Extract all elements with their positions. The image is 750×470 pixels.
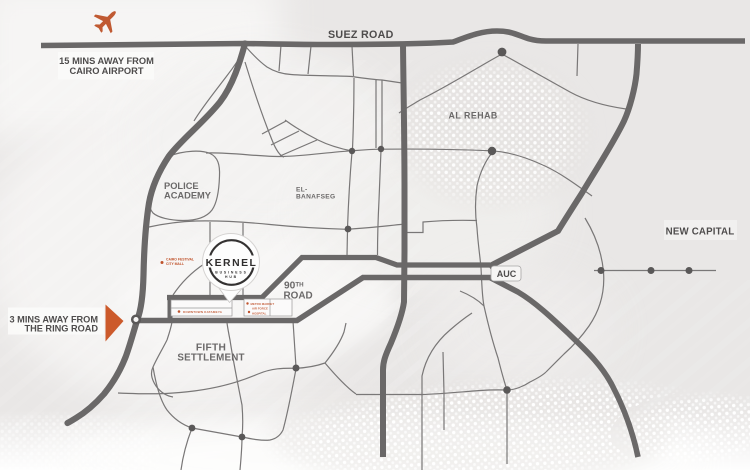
svg-text:POLICE: POLICE <box>164 181 199 191</box>
svg-text:BUSINESS: BUSINESS <box>215 271 248 275</box>
svg-text:AUC: AUC <box>497 269 517 279</box>
svg-text:ROAD: ROAD <box>284 290 313 301</box>
svg-text:NEW CAPITAL: NEW CAPITAL <box>666 227 735 238</box>
svg-text:THE RING ROAD: THE RING ROAD <box>25 323 99 333</box>
svg-text:HOSPITAL: HOSPITAL <box>252 311 267 315</box>
svg-text:CAIRO AIRPORT: CAIRO AIRPORT <box>69 66 143 76</box>
svg-text:SETTLEMENT: SETTLEMENT <box>177 353 244 364</box>
svg-text:AIR FORCE: AIR FORCE <box>252 306 268 310</box>
svg-text:KERNEL: KERNEL <box>206 258 258 269</box>
svg-text:HUB: HUB <box>225 275 238 279</box>
svg-text:CAIRO FESTIVAL: CAIRO FESTIVAL <box>166 258 194 262</box>
svg-text:AL REHAB: AL REHAB <box>449 111 498 121</box>
svg-text:ACADEMY: ACADEMY <box>164 191 212 201</box>
svg-text:SUEZ ROAD: SUEZ ROAD <box>328 29 394 41</box>
svg-text:DOWNTOWN KATAMEYA: DOWNTOWN KATAMEYA <box>183 310 223 314</box>
svg-text:15 MINS AWAY FROM: 15 MINS AWAY FROM <box>59 56 154 66</box>
svg-text:CITY MALL: CITY MALL <box>166 262 184 266</box>
svg-text:METRO MARKET: METRO MARKET <box>251 302 275 306</box>
svg-text:BANAFSEG: BANAFSEG <box>296 194 335 201</box>
svg-text:EL-: EL- <box>296 187 308 194</box>
